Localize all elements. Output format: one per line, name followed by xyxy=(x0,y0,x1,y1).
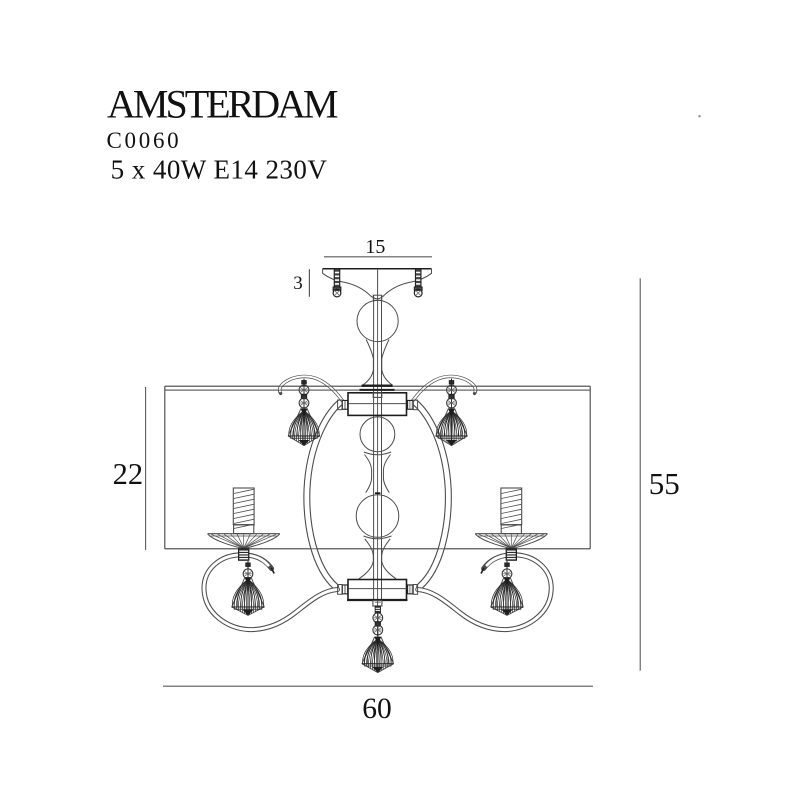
svg-text:60: 60 xyxy=(362,693,392,725)
svg-text:55: 55 xyxy=(649,466,680,501)
svg-text:5 x 40W E14 230V: 5 x 40W E14 230V xyxy=(111,154,328,184)
svg-text:C0060: C0060 xyxy=(107,128,182,153)
svg-text:AMSTERDAM: AMSTERDAM xyxy=(107,82,338,127)
svg-text:3: 3 xyxy=(293,273,303,294)
svg-text:22: 22 xyxy=(113,457,144,491)
svg-text:15: 15 xyxy=(365,236,385,258)
